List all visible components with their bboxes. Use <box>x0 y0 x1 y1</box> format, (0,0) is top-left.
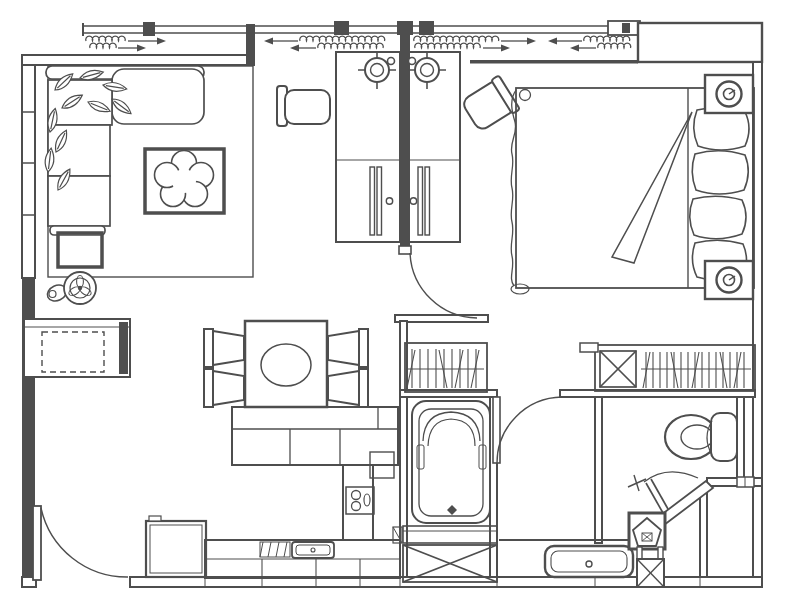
curtain-coil <box>318 43 383 48</box>
sideboard <box>24 319 130 377</box>
nightstand-top <box>705 75 753 113</box>
arrow-left-icon <box>264 38 273 45</box>
pillow <box>692 151 748 194</box>
living-curtain <box>86 36 166 51</box>
sofa-seat-wide <box>112 69 204 124</box>
hanger-closet-1 <box>405 343 487 392</box>
curtain-coil <box>584 36 630 41</box>
bedroom-curtain <box>548 36 631 51</box>
dining-chair <box>328 369 368 407</box>
desk-lamp-left <box>358 52 396 89</box>
vanity <box>499 540 637 577</box>
mullion-block <box>419 21 434 35</box>
curtain-coil <box>415 43 481 48</box>
dining-chair <box>204 329 244 367</box>
arrow-left-icon <box>570 45 579 52</box>
bedroom <box>511 75 754 299</box>
partition-end-cap <box>399 246 411 254</box>
side-table <box>58 233 102 267</box>
drainer-hatch <box>260 542 290 557</box>
top-balcony-window-band <box>83 21 640 36</box>
lamp-switch <box>409 58 416 65</box>
sideboard-end-panel <box>119 322 128 374</box>
door-leaf <box>646 483 663 513</box>
monitor-knob <box>386 198 392 204</box>
tub-head-curve <box>423 412 480 441</box>
bathtub <box>412 401 490 523</box>
arrow-right-icon <box>137 45 146 52</box>
kitchen <box>146 452 400 578</box>
shaft-wall <box>700 487 707 577</box>
burner <box>352 502 361 511</box>
entry-door <box>33 506 128 580</box>
blanket-fold <box>612 112 692 263</box>
nightstand-bottom <box>705 261 753 299</box>
tub-head-curve <box>428 419 475 446</box>
step-band <box>393 526 497 543</box>
chair-seat <box>285 90 330 124</box>
small-x-shaft <box>637 547 664 587</box>
top-right-wall-block <box>638 23 762 62</box>
desk-left <box>336 52 400 242</box>
pillows <box>690 107 749 280</box>
living-room <box>24 66 253 377</box>
blanket-corner-curl <box>511 284 529 294</box>
door-leaf <box>493 397 500 463</box>
curtain-coil <box>414 36 499 41</box>
band-end-inner <box>622 23 630 33</box>
desk-right-curtain <box>414 36 536 51</box>
dining-chairs <box>204 329 368 407</box>
wc-left-wall <box>595 397 602 543</box>
desk-left-curtain <box>264 36 385 51</box>
wc-right-wall <box>737 397 744 480</box>
living-top-wall <box>22 55 254 65</box>
hall-door <box>410 253 477 318</box>
closet-wall-stub <box>580 343 598 352</box>
curtain-coil <box>300 36 385 41</box>
pentagon-column <box>629 513 665 549</box>
floor-plan <box>0 0 800 600</box>
dining-chair <box>204 369 244 407</box>
coffee-table <box>145 149 224 213</box>
desk-chair-right <box>460 75 520 133</box>
arrow-right-icon <box>157 38 166 45</box>
bathroom <box>393 343 497 582</box>
shelf-x-box <box>600 351 636 387</box>
hangers <box>643 352 744 388</box>
dining-area <box>204 321 398 465</box>
monitor-knob <box>410 198 416 204</box>
monitor-right <box>410 167 429 235</box>
flower-centerpiece <box>155 151 214 207</box>
arrow-right-icon <box>527 38 536 45</box>
lower-counter <box>205 540 400 578</box>
mullion-block <box>143 22 155 36</box>
mullion-block <box>334 21 349 35</box>
wall-jog <box>246 24 255 65</box>
toilet-bowl <box>665 415 717 459</box>
sofa-cushion <box>48 176 110 226</box>
desk-chair-left <box>277 86 330 126</box>
curtain-coil <box>598 43 631 48</box>
curtain-coil <box>90 43 116 48</box>
left-window-wall <box>22 55 35 577</box>
pillow <box>690 196 746 239</box>
tub-drain <box>447 505 457 515</box>
desk-lamp-right <box>408 52 446 89</box>
dining-chair <box>328 329 368 367</box>
curtains <box>86 36 631 51</box>
oval-centerpiece <box>261 344 311 386</box>
door-leaf <box>651 479 668 509</box>
tub-grip <box>417 445 424 469</box>
toilet-tank <box>711 413 737 461</box>
curtain-coil <box>86 36 126 41</box>
floor-plan-canvas <box>0 0 800 600</box>
blanket-corner-circle <box>520 90 531 101</box>
bedroom-top-wall <box>470 60 638 64</box>
bathroom-door <box>493 397 562 463</box>
hob-control <box>364 494 370 506</box>
kitchen-sink <box>292 542 334 558</box>
wc-area <box>499 343 755 587</box>
door-swing-arc <box>410 253 477 318</box>
arrow-right-icon <box>501 45 510 52</box>
arrow-left-icon <box>548 38 557 45</box>
dining-table <box>245 321 327 407</box>
burner <box>352 491 361 500</box>
buffet-counter <box>232 407 398 465</box>
toilet <box>665 413 737 461</box>
bath-top-wall <box>400 390 497 397</box>
arrow-left-icon <box>290 45 299 52</box>
refrigerator <box>146 516 206 577</box>
lamp-switch <box>388 58 395 65</box>
two-burner-hob <box>346 487 374 514</box>
door-leaf <box>33 506 41 580</box>
fridge-handle <box>149 516 161 521</box>
door-swing-arc <box>41 508 128 577</box>
hanger-closet-2 <box>580 343 755 391</box>
door-swing-arc <box>497 397 562 463</box>
monitor-left <box>370 167 393 235</box>
work-area <box>277 52 520 242</box>
